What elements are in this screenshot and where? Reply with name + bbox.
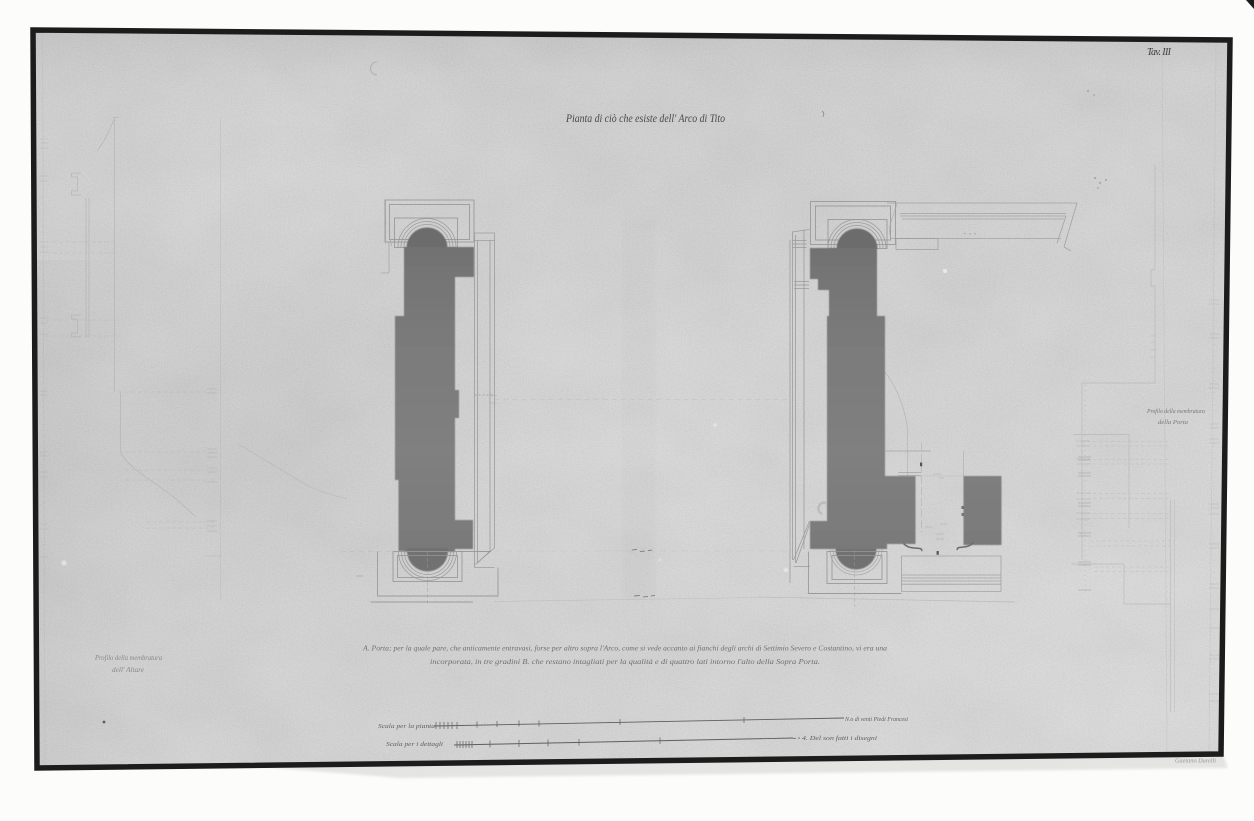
svg-text:Profilo della membratura: Profilo della membratura bbox=[94, 654, 162, 662]
svg-text:Gaetano Durelli: Gaetano Durelli bbox=[1175, 758, 1216, 765]
svg-text:Tav. III: Tav. III bbox=[1147, 47, 1172, 58]
svg-text:A. Porta; per la quale pare, c: A. Porta; per la quale pare, che anticam… bbox=[362, 646, 888, 653]
svg-text:Scala per i dettagli: Scala per i dettagli bbox=[386, 741, 443, 748]
svg-text:Scala per la pianta: Scala per la pianta bbox=[378, 723, 435, 730]
svg-text:dell' Altare: dell' Altare bbox=[112, 666, 144, 674]
svg-text:4. Del son fatti i disegni: 4. Del son fatti i disegni bbox=[802, 735, 877, 742]
svg-text:della Porta: della Porta bbox=[1158, 419, 1188, 426]
svg-text:N.o di venti Piedi Francesi: N.o di venti Piedi Francesi bbox=[844, 716, 908, 723]
svg-text:Profilo della membratura: Profilo della membratura bbox=[1146, 408, 1205, 415]
svg-text:incorporata, in tre gradini B.: incorporata, in tre gradini B. che resta… bbox=[430, 659, 820, 666]
svg-text:Pianta di ciò che esiste dell': Pianta di ciò che esiste dell' Arco di T… bbox=[565, 111, 725, 125]
